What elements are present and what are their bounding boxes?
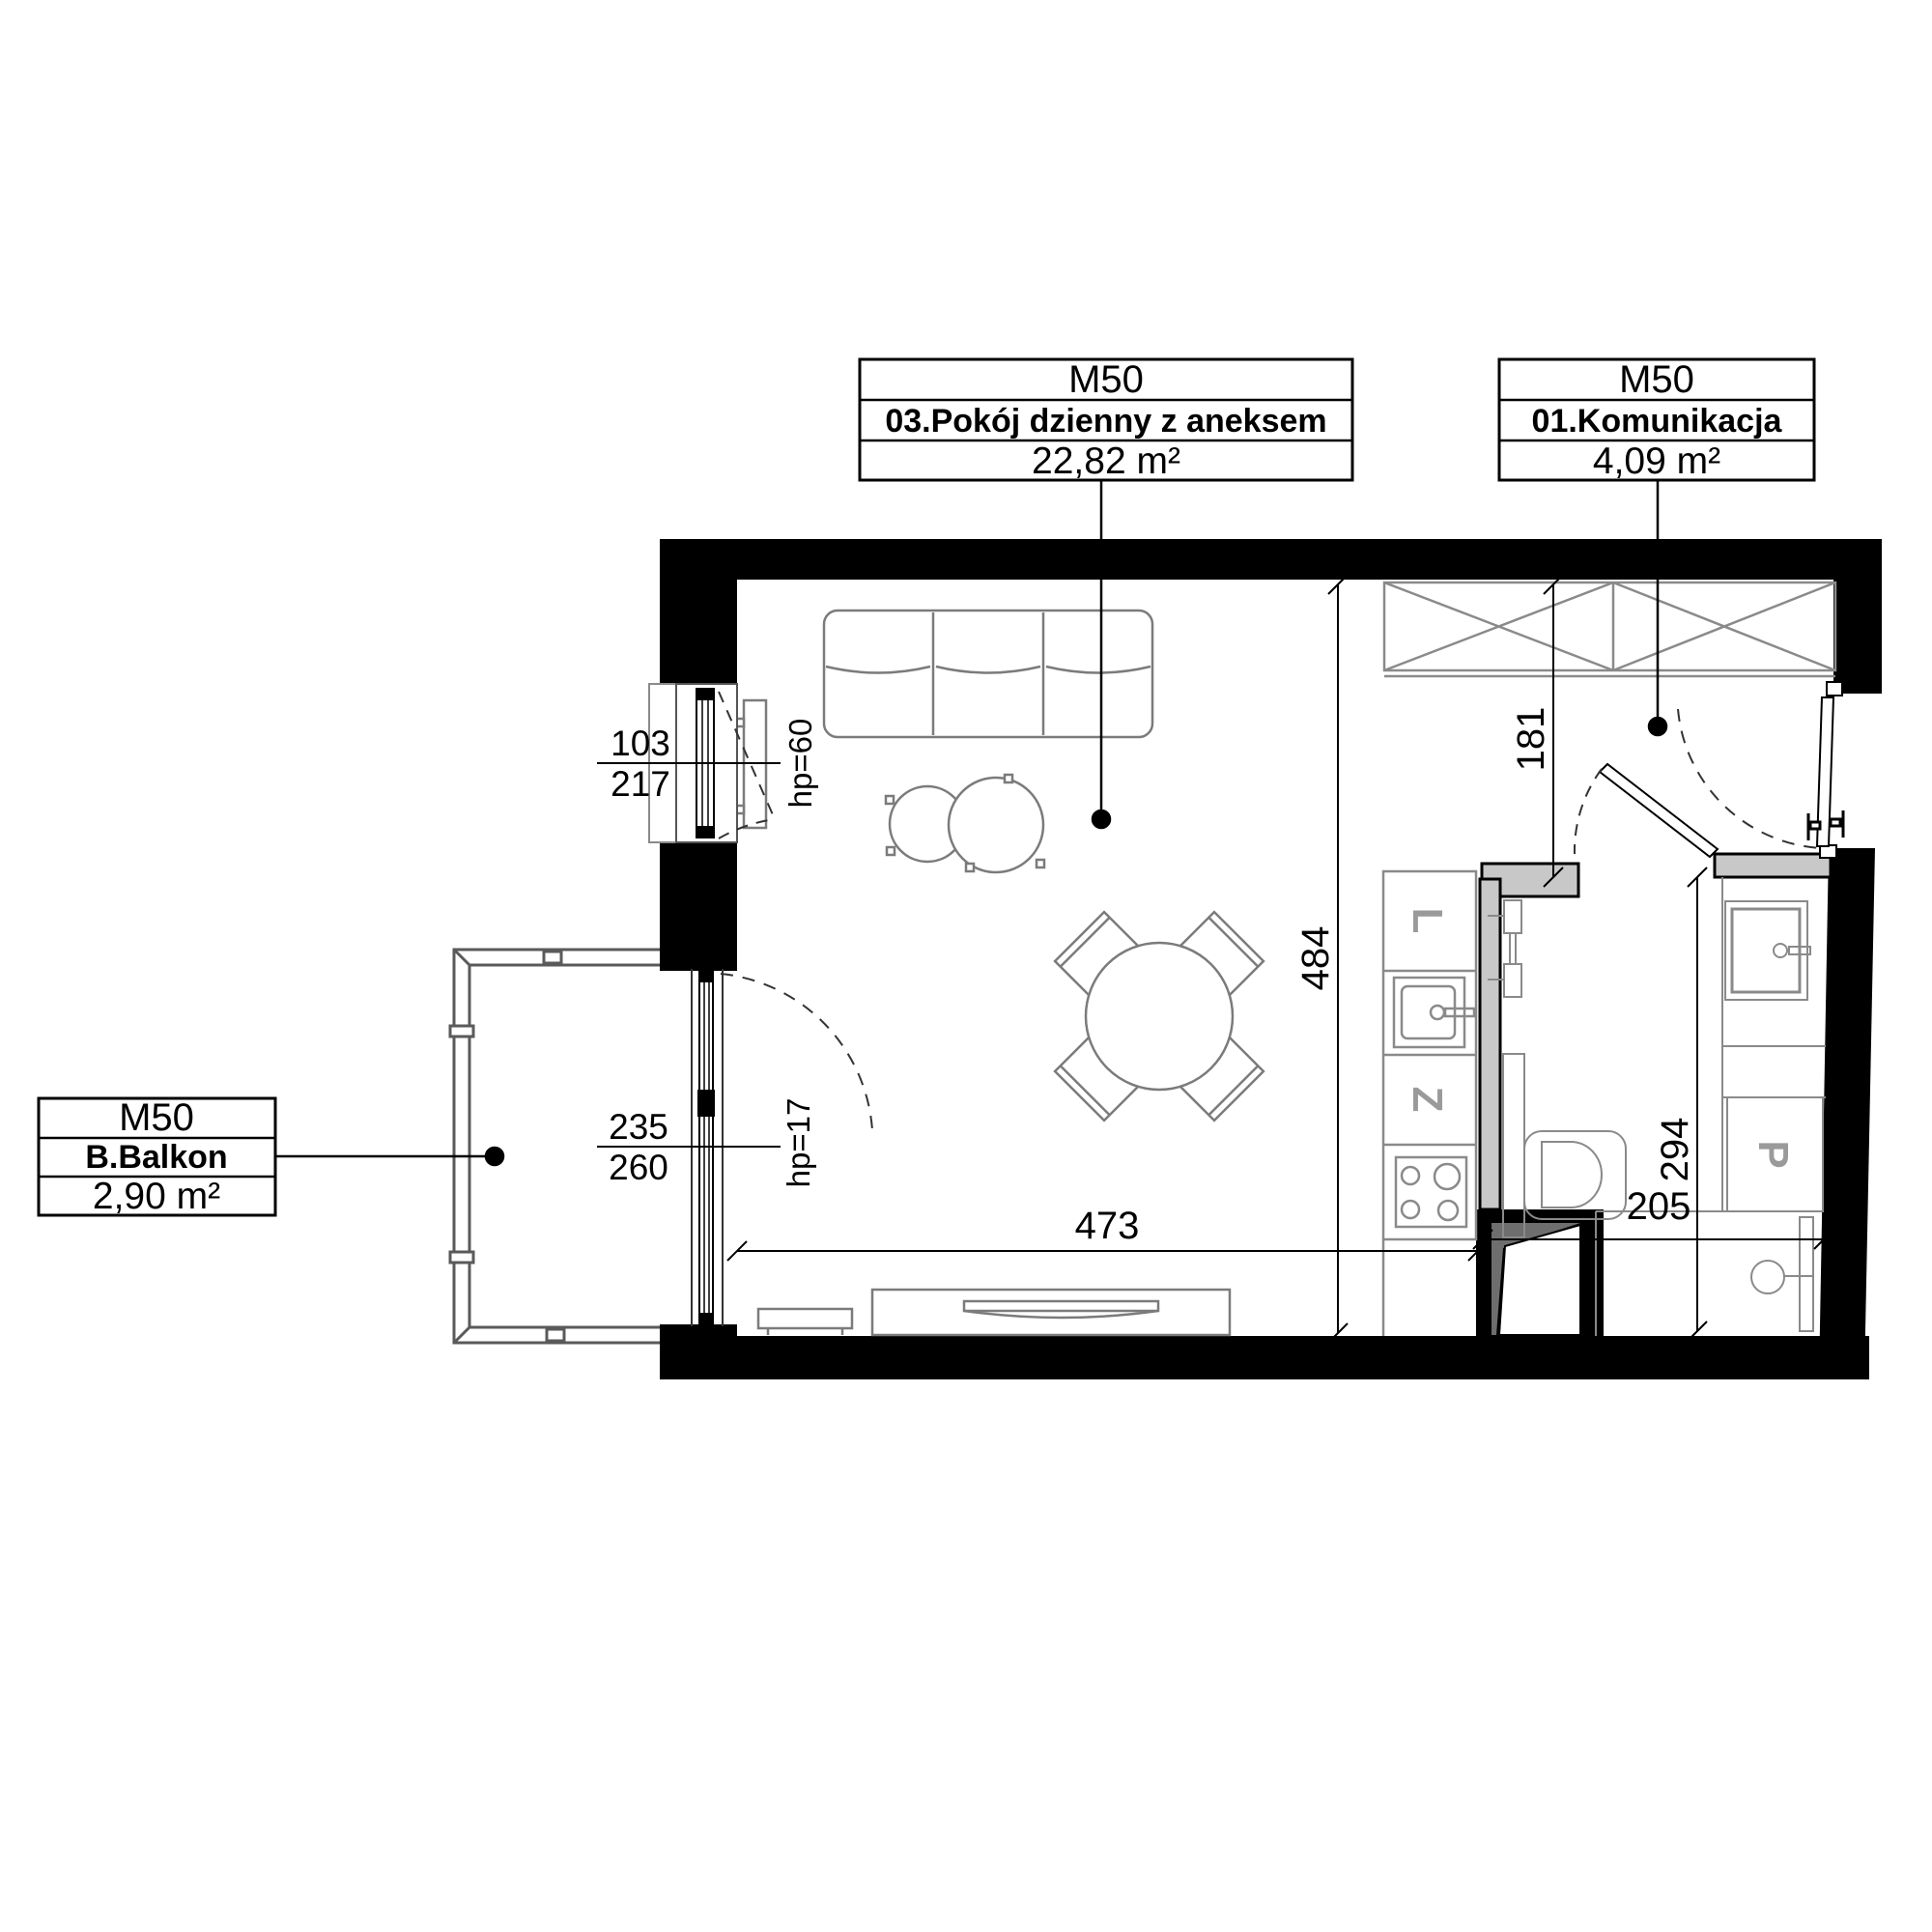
hall-label-unit: M50 (1619, 358, 1694, 401)
balcony-post (544, 952, 561, 963)
washer-letter: P (1749, 1140, 1797, 1168)
entry-door (1678, 682, 1843, 858)
balcony-railing-miter (454, 1327, 469, 1343)
dim-balconydoor-width-total-text: 260 (609, 1148, 668, 1187)
living-room-label-name: 03.Pokój dzienny z aneksem (885, 403, 1326, 440)
table-foot (1005, 775, 1012, 782)
dim-hall-height-text: 181 (1510, 707, 1552, 772)
window-end-block (696, 689, 714, 700)
partition-kitchen-bath (1480, 879, 1500, 1209)
wardrobe (1384, 582, 1835, 676)
entry-door-frame (1827, 682, 1842, 696)
window-end-block (696, 826, 714, 838)
shower (1751, 1217, 1813, 1331)
dim-window-parapet-text: hp=60 (782, 719, 818, 809)
toilet-bowl (1542, 1142, 1602, 1207)
dim-bath-height-text: 294 (1654, 1118, 1696, 1182)
tv-unit (758, 1290, 1230, 1335)
bathroom-door-leaf (1600, 764, 1718, 857)
stove-burner (1402, 1167, 1419, 1184)
hall-label: M50 01.Komunikacja 4,09 m² (1499, 358, 1814, 482)
table-foot (887, 847, 895, 855)
dishwasher-letter: Z (1404, 1087, 1451, 1113)
kitchen-sink (1394, 978, 1474, 1047)
table-foot (966, 864, 974, 871)
table-foot (886, 796, 894, 804)
leader-living-dot (1093, 810, 1110, 828)
toilet-outline (1524, 1131, 1626, 1219)
hall-label-name: 01.Komunikacja (1532, 403, 1783, 440)
entry-door-swing-dashed (1678, 709, 1822, 848)
wall-right-lower (1819, 848, 1875, 1379)
wall-left-upper (660, 580, 737, 686)
radiator-segment (1504, 900, 1521, 933)
sink-faucet-arm (1445, 1009, 1474, 1016)
living-room-label: M50 03.Pokój dzienny z aneksem 22,82 m² (860, 358, 1352, 482)
balcony-label-unit: M50 (119, 1096, 194, 1139)
living-room-label-unit: M50 (1068, 358, 1144, 401)
stove-burner (1435, 1164, 1460, 1189)
sofa (824, 611, 1152, 737)
fridge-letter: L (1404, 908, 1451, 934)
dim-window-width-total-text: 217 (611, 764, 670, 804)
washbasin-outer (1725, 901, 1807, 1000)
sink-faucet-icon (1431, 1006, 1444, 1019)
bathroom-door (1575, 764, 1718, 857)
balcony-label-name: B.Balkon (85, 1139, 227, 1176)
washbasin-faucet-icon (1774, 944, 1787, 957)
washbasin (1725, 901, 1810, 1000)
leader-balcony-dot (486, 1148, 503, 1165)
balcony-railing-miter (454, 950, 469, 965)
radiator-segment (1504, 964, 1521, 997)
balcony-door-handle (697, 1090, 715, 1117)
living-room-label-area: 22,82 m² (1032, 440, 1180, 482)
dim-bath-height (1688, 867, 1707, 1341)
table-foot (1037, 860, 1044, 867)
stove (1396, 1157, 1466, 1227)
leader-hall-dot (1649, 718, 1666, 735)
dining-table (1086, 943, 1233, 1090)
balcony-post (450, 1026, 473, 1037)
wall-left-mid (660, 840, 737, 971)
dim-window-width-text: 103 (611, 724, 670, 763)
stove-burner (1402, 1201, 1419, 1218)
partition-hall-bath (1715, 854, 1831, 877)
sink-basin (1402, 986, 1455, 1038)
wall-right-top-column (1833, 580, 1882, 694)
balcony-label: M50 B.Balkon 2,90 m² (39, 1096, 275, 1217)
balcony-post (547, 1329, 564, 1341)
shower-glass (1800, 1217, 1813, 1331)
hall-label-area: 4,09 m² (1593, 440, 1720, 482)
coffee-table-large (949, 778, 1043, 872)
dim-living-height-text: 484 (1294, 926, 1337, 991)
bathroom-door-swing-dashed (1575, 769, 1602, 854)
floor-plan-page: L Z (0, 0, 1932, 1932)
dining-set (1055, 912, 1264, 1121)
balcony-post (450, 1252, 473, 1263)
balcony-door-end-block (699, 971, 713, 982)
dim-living-width-text: 473 (1075, 1205, 1140, 1247)
floor-plan-drawing: L Z (0, 0, 1932, 1932)
wall-top (660, 539, 1882, 580)
balcony-door-end-block (699, 1313, 713, 1324)
tv-screen (964, 1301, 1158, 1311)
wall-bottom-left (660, 1336, 1483, 1379)
balcony-label-area: 2,90 m² (93, 1176, 220, 1217)
coffee-tables (886, 775, 1044, 872)
dim-balconydoor-width-text: 235 (609, 1107, 668, 1147)
shower-drain-icon (1751, 1261, 1784, 1293)
bench (758, 1309, 852, 1328)
tv-cabinet (872, 1290, 1230, 1335)
toilet (1524, 1131, 1626, 1219)
dim-bath-width-text: 205 (1627, 1185, 1691, 1228)
dim-balconydoor-parapet-text: hp=17 (781, 1098, 816, 1188)
stove-burner (1438, 1201, 1458, 1220)
wardrobe-outline (1384, 582, 1835, 670)
